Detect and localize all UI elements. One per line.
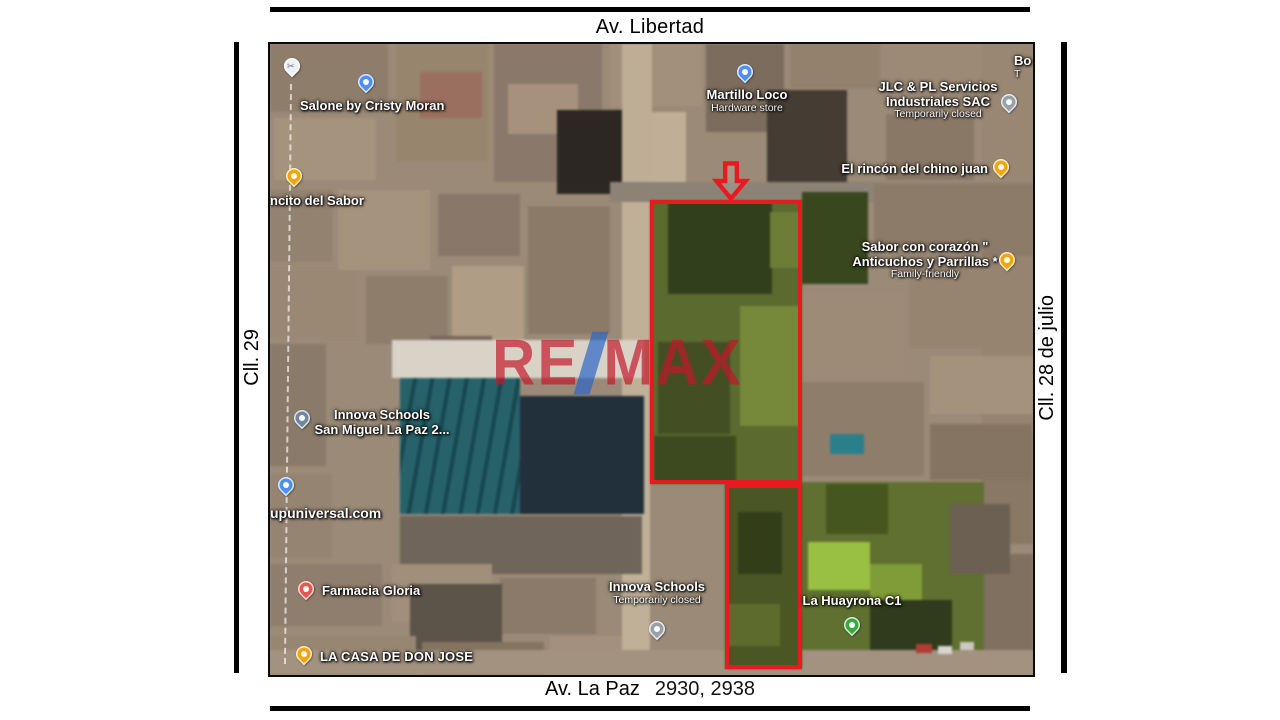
clipped-label-line2: T <box>1014 69 1031 81</box>
jlc-line2: Industriales SAC <box>886 94 990 109</box>
bottom-road-name: Av. La Paz <box>545 678 640 701</box>
poi-label-jlc[interactable]: JLC & PL Servicios Industriales SAC Temp… <box>879 80 998 121</box>
poi-label-martillo-loco[interactable]: Martillo Loco Hardware store <box>707 88 788 114</box>
left-road-label-wrap: Cll. 29 <box>240 42 264 673</box>
poi-label-farmacia[interactable]: Farmacia Gloria <box>322 584 420 599</box>
salon-scissors-pin-icon[interactable] <box>281 55 304 78</box>
poi-label-rincon-chino[interactable]: El rincón del chino juan <box>841 162 988 177</box>
martillo-loco-pin-icon[interactable] <box>734 61 757 84</box>
clipped-label-line1: Bo <box>1014 53 1031 68</box>
bottom-road-label: Av. La Paz 2930, 2938 <box>270 678 1030 701</box>
poi-label-universal[interactable]: upuniversal.com <box>270 506 381 522</box>
jlc-subtext: Temporarily closed <box>879 109 998 121</box>
sabor-line2: Anticuchos y Parrillas * <box>852 254 997 269</box>
innova-closed-name: Innova Schools <box>609 579 705 594</box>
innova-line2: San Miguel La Paz 2... <box>314 422 449 437</box>
top-frame-bar <box>270 7 1030 12</box>
location-arrow-icon <box>712 160 750 202</box>
right-road-label: Cll. 28 de julio <box>1036 295 1059 421</box>
salone-pin-icon[interactable] <box>355 71 378 94</box>
innova-schools-pin-icon[interactable] <box>291 407 314 430</box>
remax-watermark: RE MAX <box>492 325 743 400</box>
poi-label-innova-schools[interactable]: Innova Schools San Miguel La Paz 2... <box>314 408 449 437</box>
farmacia-pin-icon[interactable] <box>295 578 318 601</box>
parcel-outline-lower <box>725 484 802 669</box>
casa-don-jose-pin-icon[interactable] <box>293 643 316 666</box>
top-road-label: Av. Libertad <box>270 16 1030 39</box>
left-frame-bar <box>234 42 239 673</box>
jlc-pin-icon[interactable] <box>998 91 1021 114</box>
left-road-label: Cll. 29 <box>241 329 264 386</box>
remax-watermark-max: MAX <box>603 325 742 400</box>
satellite-map[interactable]: RE MAX Salone by Cristy Moran Martillo L… <box>268 42 1035 677</box>
bottom-frame-bar <box>270 706 1030 711</box>
sabor-line1: Sabor con corazón " <box>862 239 989 254</box>
poi-label-sabor[interactable]: Sabor con corazón " Anticuchos y Parrill… <box>852 240 997 281</box>
right-frame-bar <box>1061 42 1067 673</box>
poi-label-huayrona[interactable]: La Huayrona C1 <box>803 594 902 609</box>
sabor-subtext: Family-friendly <box>852 269 997 281</box>
poi-label-rinconcito[interactable]: ncito del Sabor <box>270 194 364 209</box>
innova-line1: Innova Schools <box>334 407 430 422</box>
sabor-pin-icon[interactable] <box>996 249 1019 272</box>
right-road-label-wrap: Cll. 28 de julio <box>1034 42 1060 673</box>
universal-pin-icon[interactable] <box>275 474 298 497</box>
poi-label-salone[interactable]: Salone by Cristy Moran <box>300 99 444 114</box>
huayrona-pin-icon[interactable] <box>841 614 864 637</box>
martillo-loco-name: Martillo Loco <box>707 87 788 102</box>
bottom-road-addresses: 2930, 2938 <box>655 678 755 701</box>
innova-closed-subtext: Temporarily closed <box>609 595 705 607</box>
martillo-loco-subtext: Hardware store <box>707 103 788 115</box>
poi-label-innova-closed[interactable]: Innova Schools Temporarily closed <box>609 580 705 606</box>
rinconcito-pin-icon[interactable] <box>283 165 306 188</box>
poi-label-casa-don-jose[interactable]: LA CASA DE DON JOSE <box>320 650 473 665</box>
jlc-line1: JLC & PL Servicios <box>879 79 998 94</box>
rincon-chino-pin-icon[interactable] <box>990 156 1013 179</box>
poi-label-clipped-right[interactable]: Bo T <box>1014 54 1031 80</box>
remax-watermark-re: RE <box>492 325 579 400</box>
innova-closed-pin-icon[interactable] <box>646 618 669 641</box>
